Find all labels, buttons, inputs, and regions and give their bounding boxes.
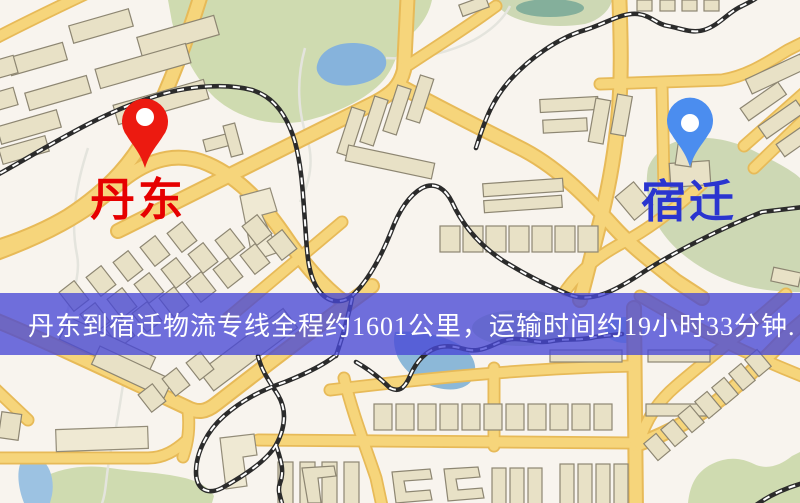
route-info-banner: 丹东到宿迁物流专线全程约1601公里，运输时间约19小时33分钟. [0, 293, 800, 355]
map-viewport[interactable]: 丹东 宿迁 丹东到宿迁物流专线全程约1601公里，运输时间约19小时33分钟. [0, 0, 800, 503]
map-canvas[interactable] [0, 0, 800, 503]
destination-city-label: 宿迁 [641, 180, 737, 225]
route-info-text: 丹东到宿迁物流专线全程约1601公里，运输时间约19小时33分钟. [0, 306, 796, 343]
origin-city-label: 丹东 [90, 178, 186, 223]
